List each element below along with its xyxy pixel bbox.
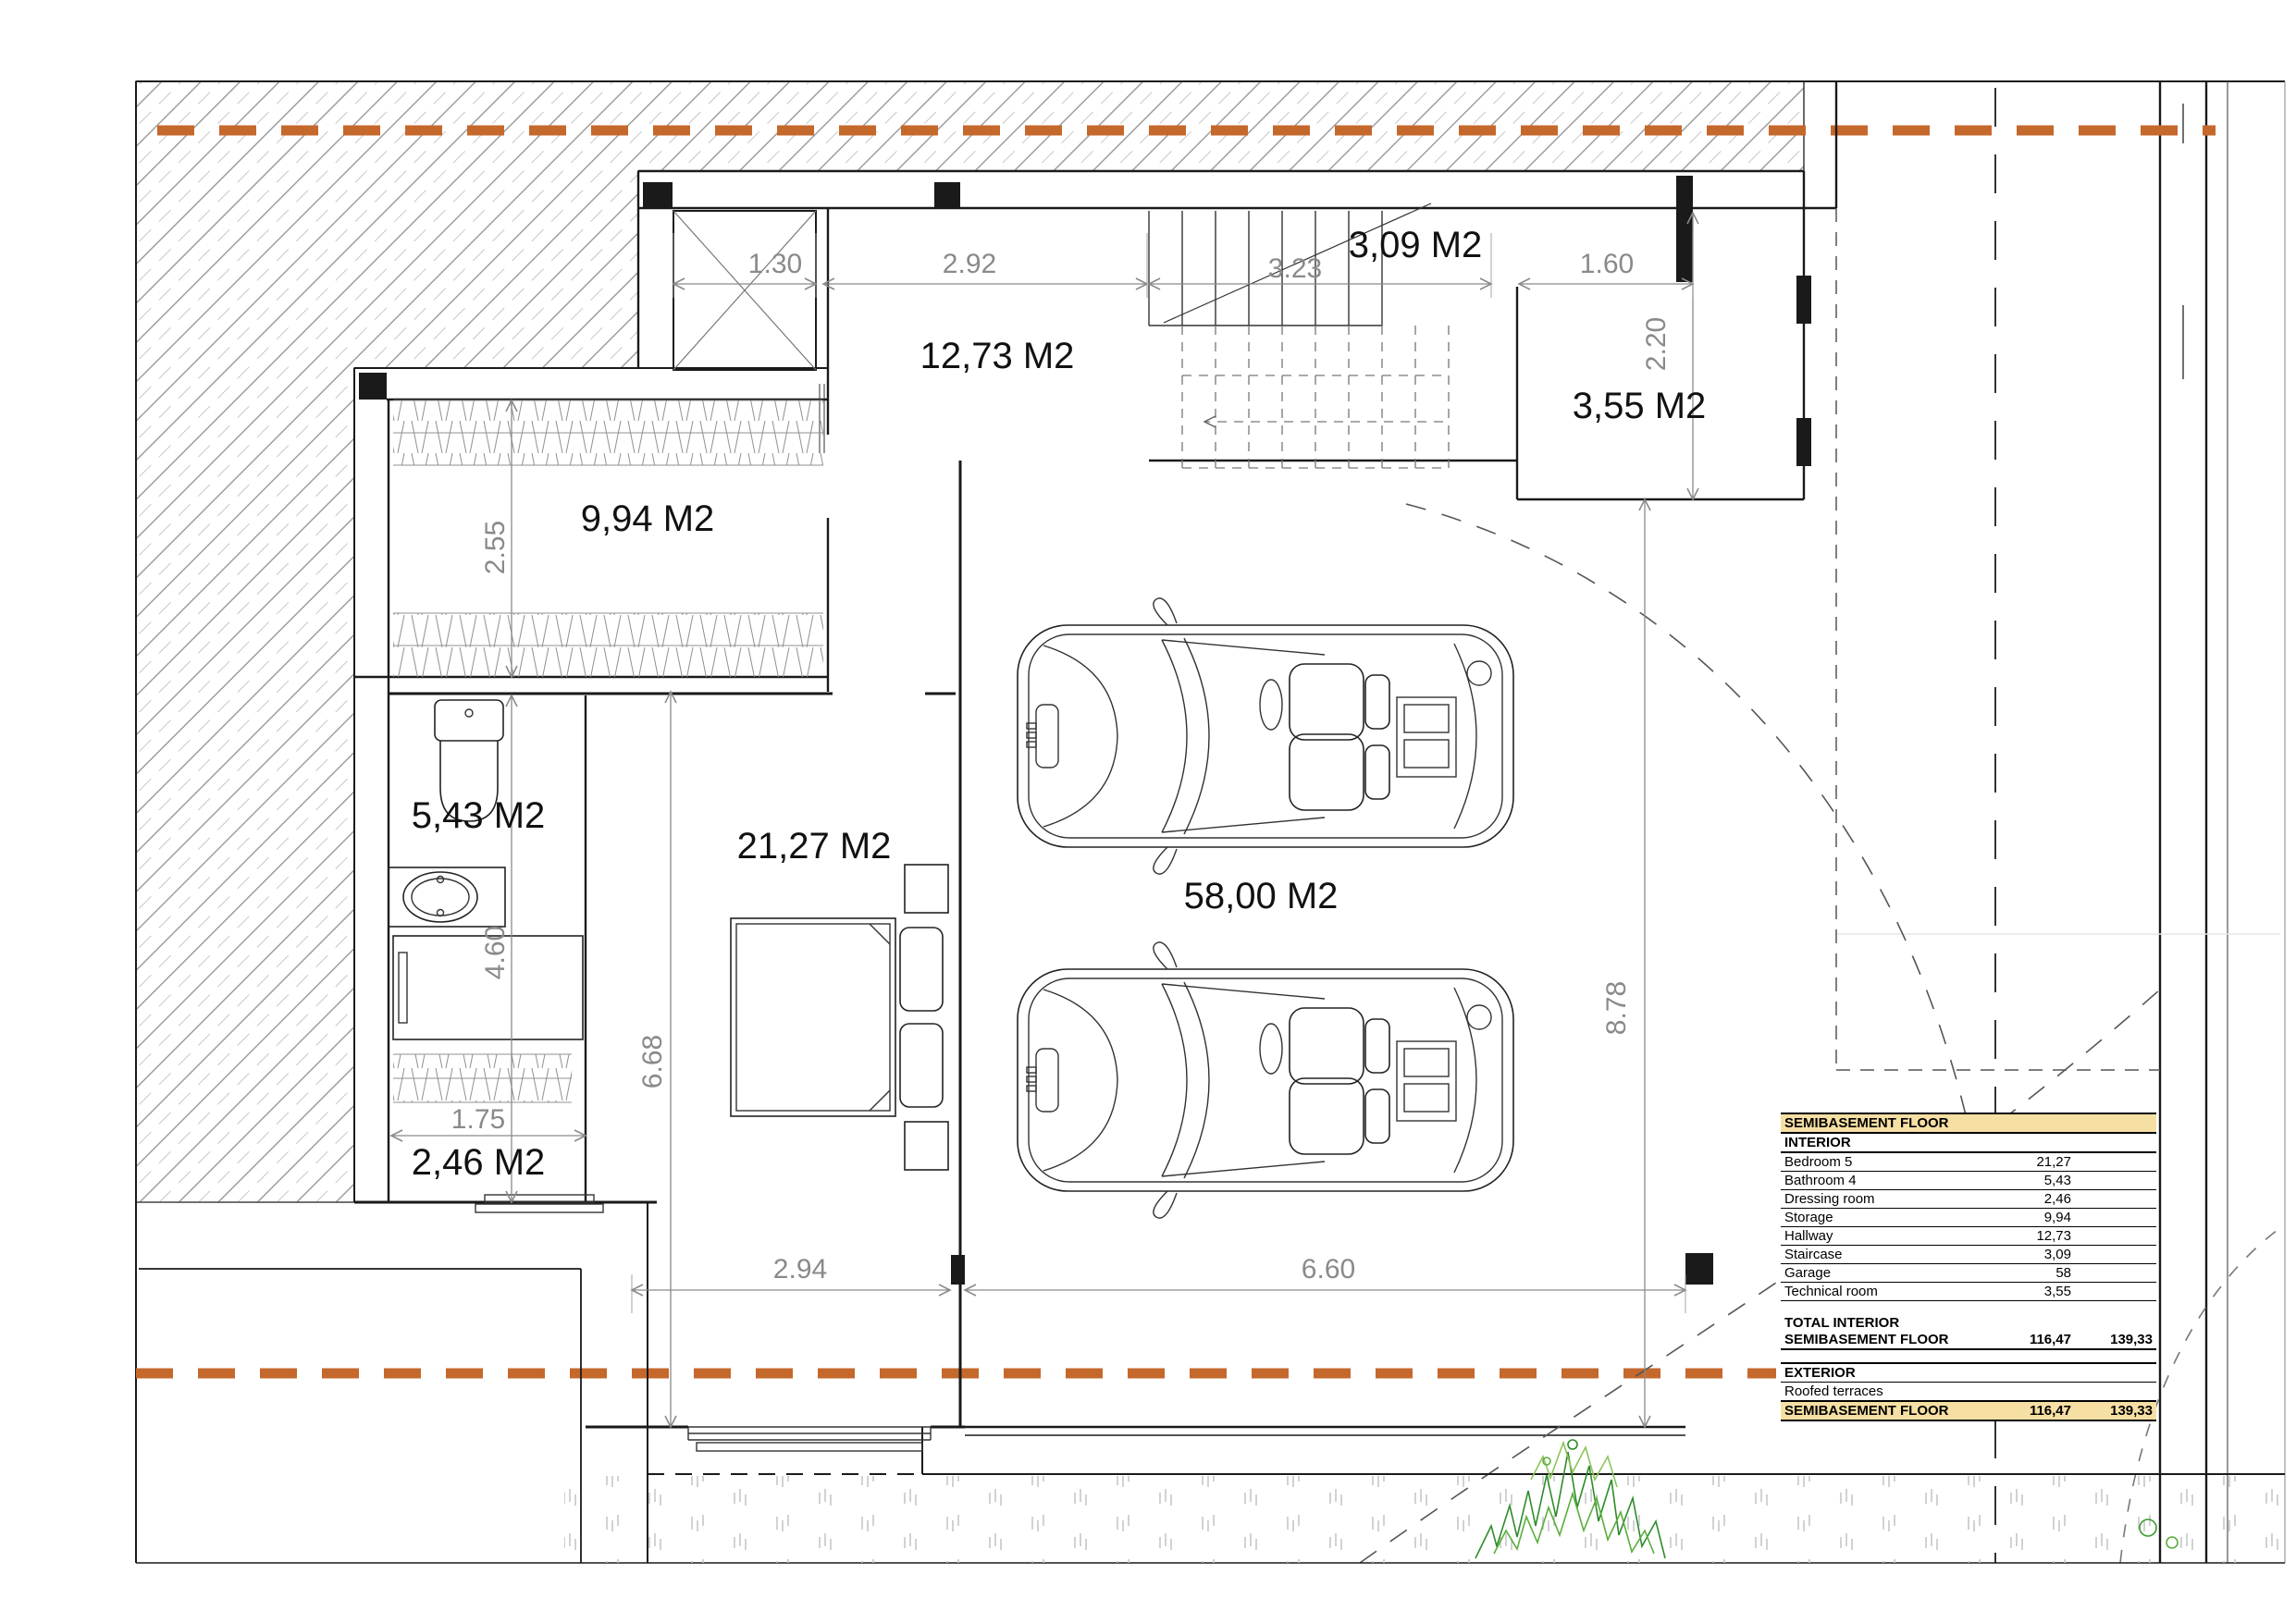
exterior-row: Roofed terraces <box>1781 1383 2156 1401</box>
dim-1-30: 1.30 <box>748 249 802 279</box>
exterior-heading-row: EXTERIOR <box>1781 1362 2156 1383</box>
label-staircase-area: 3,09 M2 <box>1349 225 1483 265</box>
dim-6-68: 6.68 <box>637 1035 668 1088</box>
dim-2-20: 2.20 <box>1641 317 1672 371</box>
total-interior-row: TOTAL INTERIOR <box>1781 1313 2156 1331</box>
interior-heading-row: INTERIOR <box>1781 1134 2156 1153</box>
sink <box>389 867 505 927</box>
area-summary-table: SEMIBASEMENT FLOOR INTERIOR Bedroom 521,… <box>1781 1113 2156 1421</box>
dim-1-60: 1.60 <box>1580 249 1634 279</box>
staircase-hidden-flight <box>1182 326 1449 468</box>
label-garage-area: 58,00 M2 <box>1184 876 1339 916</box>
roof-overhang-dashed <box>1836 208 2160 1070</box>
table-title-row: SEMIBASEMENT FLOOR <box>1781 1113 2156 1134</box>
label-technical-room-area: 3,55 M2 <box>1573 386 1707 426</box>
table-row: Hallway12,73 <box>1781 1227 2156 1246</box>
table-row: Garage58 <box>1781 1264 2156 1283</box>
table-row: Bathroom 45,43 <box>1781 1172 2156 1190</box>
label-bathroom-area: 5,43 M2 <box>412 795 546 836</box>
table-row: Staircase3,09 <box>1781 1246 2156 1264</box>
label-hallway-area: 12,73 M2 <box>920 336 1075 376</box>
bed <box>731 865 948 1170</box>
table-row: Dressing room2,46 <box>1781 1190 2156 1209</box>
table-footer-row: SEMIBASEMENT FLOOR 116,47 139,33 <box>1781 1401 2156 1421</box>
label-bedroom-area: 21,27 M2 <box>737 826 892 867</box>
floor-plan-page: { "colors": { "section_line_orange": "#C… <box>0 0 2296 1623</box>
table-row: Bedroom 521,27 <box>1781 1153 2156 1172</box>
label-dressing-room-area: 2,46 M2 <box>412 1142 546 1183</box>
car-2 <box>1018 942 1513 1218</box>
dim-2-94: 2.94 <box>773 1254 827 1285</box>
table-title: SEMIBASEMENT FLOOR <box>1784 1115 2153 1131</box>
bedroom-window <box>688 1427 931 1451</box>
dim-1-75: 1.75 <box>451 1104 505 1135</box>
label-storage-area: 9,94 M2 <box>581 498 715 539</box>
dim-2-92: 2.92 <box>943 249 996 279</box>
entry-steps <box>475 1195 603 1212</box>
dressing-shelves <box>393 1054 572 1102</box>
dim-4-60: 4.60 <box>480 926 511 979</box>
dim-3-23: 3.23 <box>1268 253 1322 284</box>
table-row: Storage9,94 <box>1781 1209 2156 1227</box>
car-1 <box>1018 598 1513 874</box>
dim-8-78: 8.78 <box>1601 981 1632 1035</box>
dim-6-60: 6.60 <box>1302 1254 1355 1285</box>
total-values-row: SEMIBASEMENT FLOOR 116,47 139,33 <box>1781 1331 2156 1350</box>
interior-heading: INTERIOR <box>1784 1135 2153 1150</box>
table-row: Technical room3,55 <box>1781 1283 2156 1301</box>
dim-2-55: 2.55 <box>480 521 511 574</box>
ground-strip <box>564 1474 2285 1563</box>
